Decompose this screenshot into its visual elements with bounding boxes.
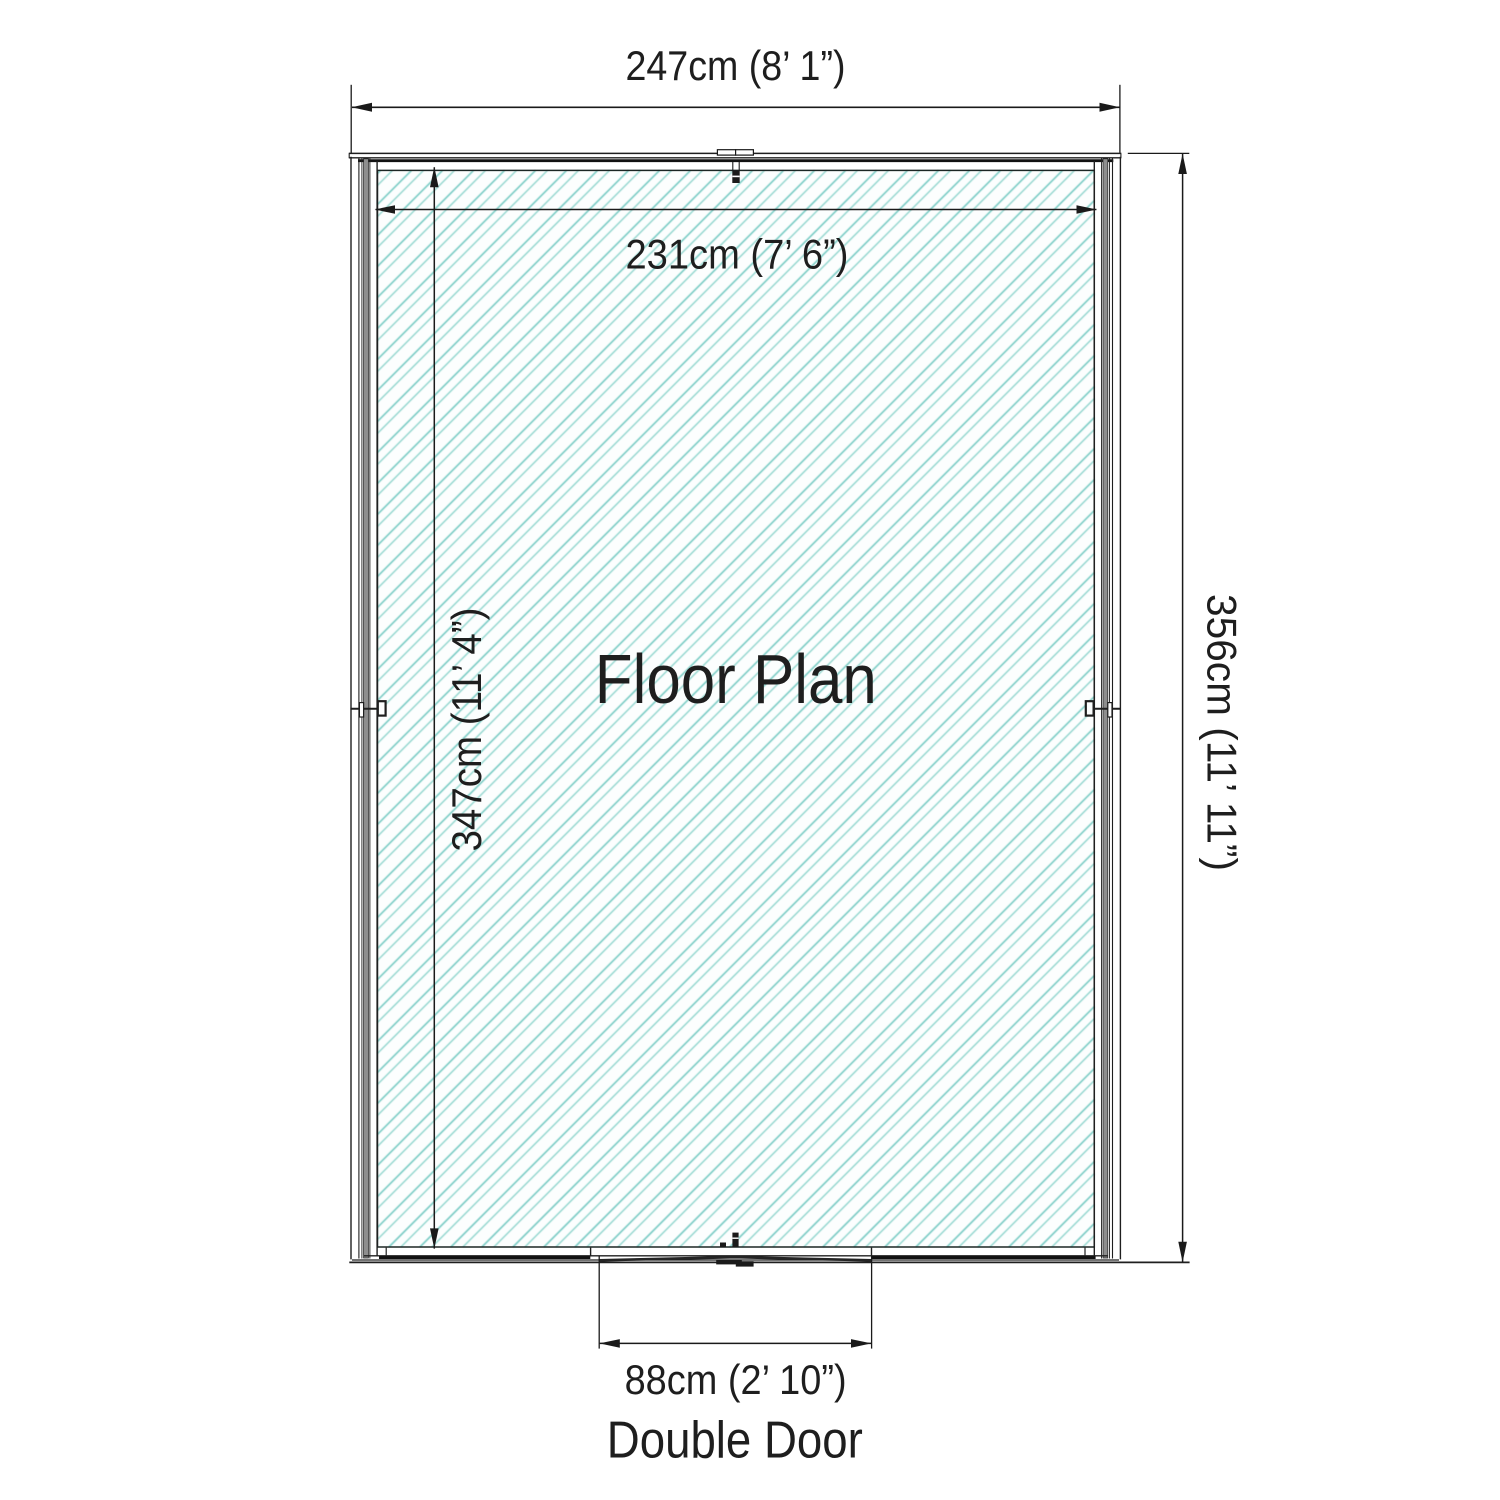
svg-text:356cm (11’ 11”): 356cm (11’ 11”) <box>1198 594 1245 871</box>
svg-text:Double Door: Double Door <box>607 1412 863 1470</box>
svg-text:231cm (7’ 6”): 231cm (7’ 6”) <box>626 231 849 278</box>
svg-text:88cm (2’ 10”): 88cm (2’ 10”) <box>625 1356 847 1403</box>
svg-text:347cm (11’ 4”): 347cm (11’ 4”) <box>443 608 490 852</box>
svg-text:247cm (8’ 1”): 247cm (8’ 1”) <box>626 42 846 89</box>
svg-text:Floor Plan: Floor Plan <box>595 640 877 718</box>
